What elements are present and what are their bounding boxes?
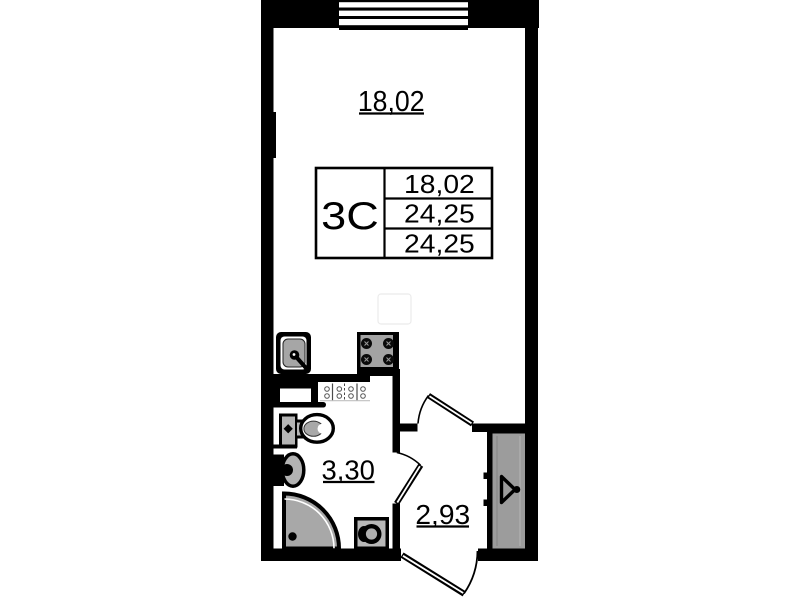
svg-text:3,30: 3,30 <box>322 455 375 486</box>
svg-text:24,25: 24,25 <box>404 201 475 229</box>
svg-text:2,93: 2,93 <box>415 499 470 530</box>
svg-text:18,02: 18,02 <box>404 171 475 199</box>
svg-text:3C: 3C <box>321 195 379 238</box>
svg-text:18,02: 18,02 <box>358 85 425 117</box>
svg-text:24,25: 24,25 <box>404 231 475 259</box>
